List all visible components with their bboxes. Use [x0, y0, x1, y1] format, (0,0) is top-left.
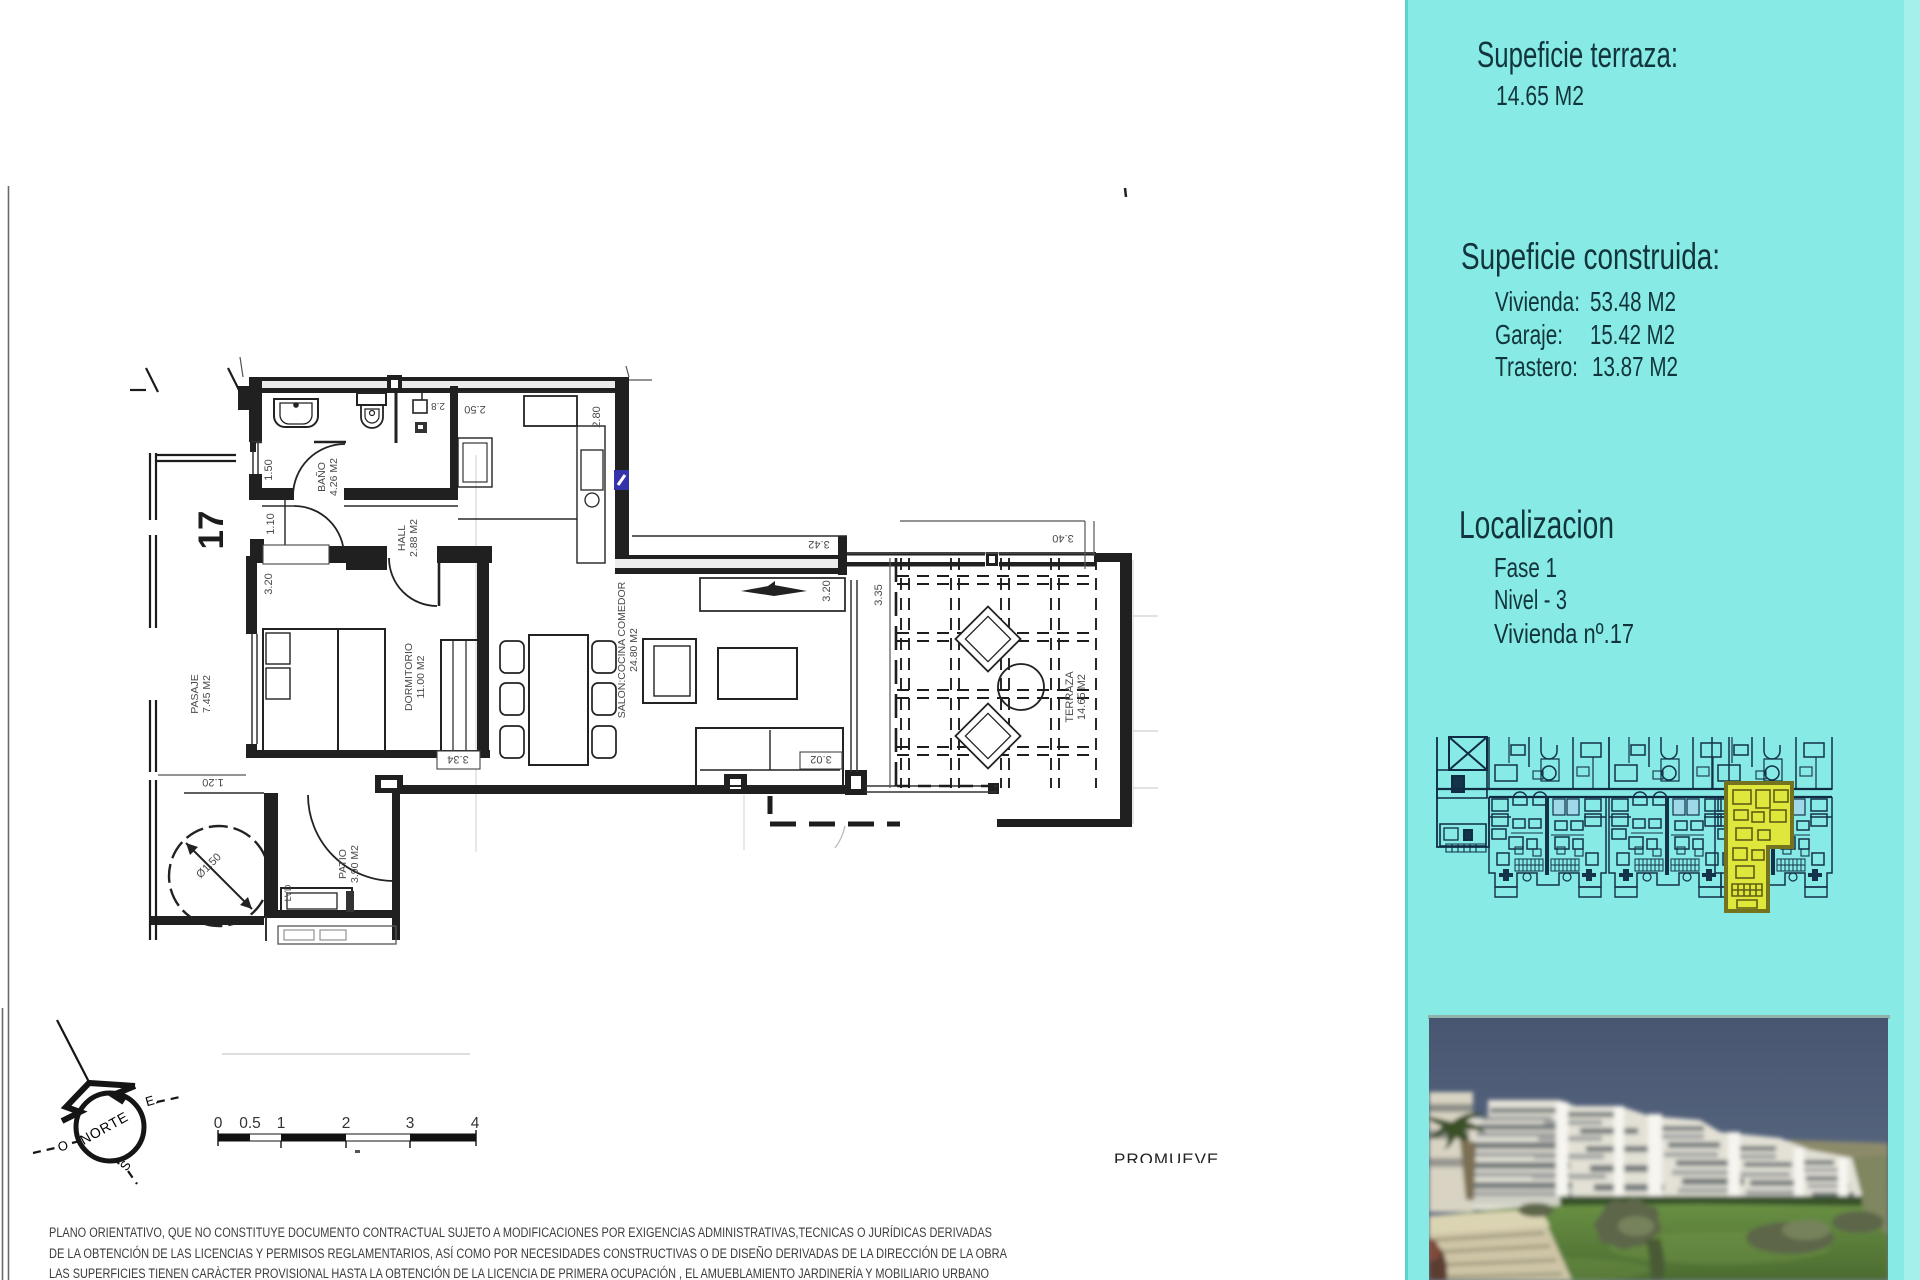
svg-text:15.42 M2: 15.42 M2 [1590, 319, 1675, 350]
svg-text:3.34: 3.34 [447, 753, 468, 765]
svg-text:0: 0 [214, 1115, 223, 1132]
svg-text:13.87 M2: 13.87 M2 [1592, 351, 1678, 382]
svg-text:2: 2 [342, 1115, 351, 1132]
svg-text:1.20: 1.20 [202, 776, 223, 788]
svg-text:0.5: 0.5 [239, 1115, 261, 1132]
svg-text:2.88 M2: 2.88 M2 [408, 519, 420, 557]
svg-text:1.50: 1.50 [263, 459, 275, 480]
svg-text:Supeficie construida:: Supeficie construida: [1461, 236, 1720, 277]
svg-text:Fase 1: Fase 1 [1494, 552, 1557, 583]
svg-text:3.42: 3.42 [808, 538, 829, 550]
svg-text:LVD: LVD [283, 884, 293, 901]
svg-text:PASAJE: PASAJE [189, 674, 201, 714]
svg-text:BAÑO: BAÑO [315, 462, 328, 492]
svg-text:14.65 M2: 14.65 M2 [1496, 80, 1584, 111]
svg-text:HALL: HALL [396, 525, 408, 551]
svg-text:Vivienda:: Vivienda: [1495, 286, 1580, 317]
svg-text:TERRAZA: TERRAZA [1064, 671, 1076, 723]
svg-text:Garaje:: Garaje: [1495, 319, 1563, 350]
svg-text:PATIO: PATIO [337, 849, 349, 879]
svg-text:SALON:COCINA COMEDOR: SALON:COCINA COMEDOR [616, 581, 628, 718]
svg-text:Supeficie terraza:: Supeficie terraza: [1477, 34, 1678, 75]
svg-text:53.48 M2: 53.48 M2 [1590, 286, 1676, 317]
svg-text:3.40: 3.40 [1052, 532, 1073, 544]
svg-text:3: 3 [406, 1115, 415, 1132]
svg-text:3.02: 3.02 [810, 753, 831, 765]
svg-text:Vivienda nº.17: Vivienda nº.17 [1494, 618, 1634, 649]
svg-text:3.20: 3.20 [821, 580, 833, 601]
svg-text:24.80 M2: 24.80 M2 [628, 628, 640, 672]
svg-text:17: 17 [192, 511, 231, 550]
svg-text:3.90 M2: 3.90 M2 [349, 845, 361, 883]
svg-text:11.00 M2: 11.00 M2 [415, 655, 427, 698]
svg-text:4: 4 [471, 1115, 480, 1132]
svg-text:1: 1 [277, 1115, 286, 1132]
svg-text:LAS SUPERFICIES TIENEN CARÀCTE: LAS SUPERFICIES TIENEN CARÀCTER PROVISIO… [49, 1266, 989, 1280]
svg-text:7.45 M2: 7.45 M2 [201, 675, 213, 713]
svg-text:Localizacion: Localizacion [1459, 504, 1614, 547]
svg-text:DORMITORIO: DORMITORIO [403, 643, 415, 711]
svg-text:3.20: 3.20 [263, 573, 275, 594]
svg-text:PLANO ORIENTATIVO, QUE NO CONS: PLANO ORIENTATIVO, QUE NO CONSTITUYE DOC… [49, 1225, 992, 1240]
svg-text:2.80: 2.80 [591, 406, 603, 427]
svg-text:1.10: 1.10 [265, 513, 277, 534]
svg-text:DE LA OBTENCIÓN DE LAS LICENCI: DE LA OBTENCIÓN DE LAS LICENCIAS Y PERMI… [49, 1246, 1007, 1261]
svg-text:14.65 M2: 14.65 M2 [1076, 674, 1088, 720]
svg-text:4.26 M2: 4.26 M2 [328, 458, 340, 496]
svg-text:2.8: 2.8 [431, 400, 445, 411]
svg-text:Nivel - 3: Nivel - 3 [1494, 584, 1567, 615]
svg-text:3.35: 3.35 [873, 584, 885, 605]
svg-text:2.50: 2.50 [464, 403, 485, 415]
svg-text:Trastero:: Trastero: [1495, 351, 1578, 382]
